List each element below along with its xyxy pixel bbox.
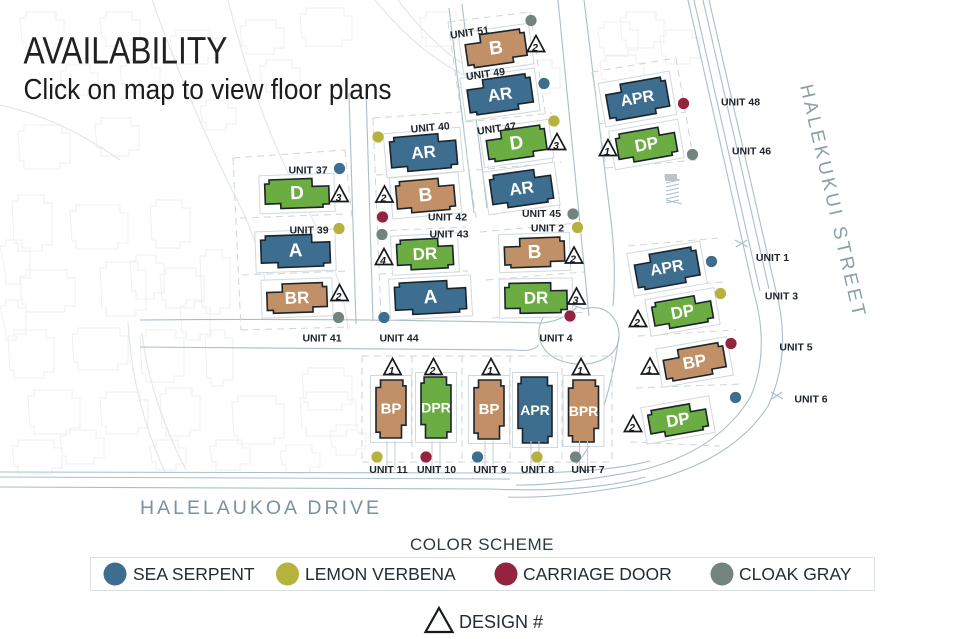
- svg-text:UNIT 42: UNIT 42: [428, 212, 467, 224]
- svg-text:UNIT 4: UNIT 4: [539, 333, 572, 345]
- svg-text:DR: DR: [412, 244, 438, 264]
- svg-text:1: 1: [646, 365, 652, 377]
- svg-text:2: 2: [569, 254, 576, 266]
- svg-text:4: 4: [379, 255, 386, 267]
- svg-text:UNIT 43: UNIT 43: [429, 229, 468, 241]
- svg-text:UNIT 5: UNIT 5: [779, 342, 812, 354]
- svg-text:2: 2: [380, 193, 387, 205]
- svg-text:BP: BP: [479, 401, 500, 418]
- svg-text:2: 2: [429, 365, 436, 377]
- svg-text:D: D: [508, 132, 525, 155]
- svg-text:UNIT 45: UNIT 45: [522, 208, 561, 220]
- svg-text:AR: AR: [508, 177, 535, 199]
- svg-text:AVAILABILITY: AVAILABILITY: [24, 31, 228, 73]
- svg-text:UNIT 1: UNIT 1: [756, 252, 789, 264]
- svg-text:UNIT 39: UNIT 39: [289, 225, 328, 237]
- svg-text:UNIT 41: UNIT 41: [302, 333, 341, 345]
- svg-text:UNIT 48: UNIT 48: [721, 97, 760, 109]
- svg-text:HALELAUKOA DRIVE: HALELAUKOA DRIVE: [140, 497, 379, 519]
- svg-text:2: 2: [633, 317, 640, 329]
- svg-text:3: 3: [336, 192, 342, 204]
- svg-text:SEA SERPENT: SEA SERPENT: [133, 564, 255, 584]
- svg-text:BR: BR: [284, 288, 309, 308]
- svg-text:DP: DP: [669, 301, 696, 324]
- svg-text:UNIT 9: UNIT 9: [473, 464, 506, 476]
- svg-text:UNIT 37: UNIT 37: [288, 165, 327, 177]
- svg-text:2: 2: [628, 422, 635, 434]
- svg-text:AR: AR: [487, 83, 514, 105]
- svg-text:3: 3: [553, 140, 559, 152]
- svg-text:AR: AR: [410, 142, 436, 163]
- svg-text:2: 2: [335, 291, 342, 303]
- svg-text:UNIT 10: UNIT 10: [417, 464, 456, 476]
- svg-text:BP: BP: [681, 351, 708, 374]
- svg-text:D: D: [290, 183, 304, 204]
- svg-text:Click on map to view floor pla: Click on map to view floor plans: [24, 74, 392, 106]
- svg-text:DPR: DPR: [421, 400, 451, 416]
- svg-text:UNIT 44: UNIT 44: [379, 333, 418, 345]
- svg-text:B: B: [527, 242, 541, 263]
- svg-text:UNIT 11: UNIT 11: [369, 464, 408, 476]
- svg-text:CARRIAGE DOOR: CARRIAGE DOOR: [523, 564, 672, 584]
- svg-text:1: 1: [604, 146, 610, 158]
- svg-text:UNIT 8: UNIT 8: [521, 464, 554, 476]
- svg-text:A: A: [423, 287, 438, 309]
- svg-text:UNIT 3: UNIT 3: [765, 291, 798, 303]
- svg-text:2: 2: [531, 42, 538, 54]
- svg-text:APR: APR: [520, 402, 550, 418]
- svg-text:1: 1: [577, 365, 583, 377]
- svg-text:CLOAK GRAY: CLOAK GRAY: [739, 564, 852, 584]
- svg-text:1: 1: [389, 365, 395, 377]
- svg-text:B: B: [488, 37, 505, 60]
- svg-text:BPR: BPR: [569, 403, 599, 419]
- svg-text:UNIT 6: UNIT 6: [794, 394, 827, 406]
- svg-text:1: 1: [487, 365, 493, 377]
- svg-text:B: B: [418, 184, 434, 206]
- svg-text:A: A: [288, 240, 303, 261]
- svg-text:BP: BP: [381, 401, 402, 418]
- svg-text:UNIT 2: UNIT 2: [531, 223, 564, 235]
- svg-text:DR: DR: [524, 288, 549, 307]
- svg-text:DESIGN #: DESIGN #: [459, 612, 543, 632]
- svg-text:UNIT 46: UNIT 46: [732, 146, 771, 158]
- svg-text:UNIT 7: UNIT 7: [571, 464, 604, 476]
- svg-text:DP: DP: [633, 133, 660, 156]
- svg-text:LEMON VERBENA: LEMON VERBENA: [305, 564, 456, 584]
- svg-text:DP: DP: [665, 409, 692, 432]
- svg-text:3: 3: [573, 295, 579, 307]
- svg-text:COLOR SCHEME: COLOR SCHEME: [410, 535, 554, 554]
